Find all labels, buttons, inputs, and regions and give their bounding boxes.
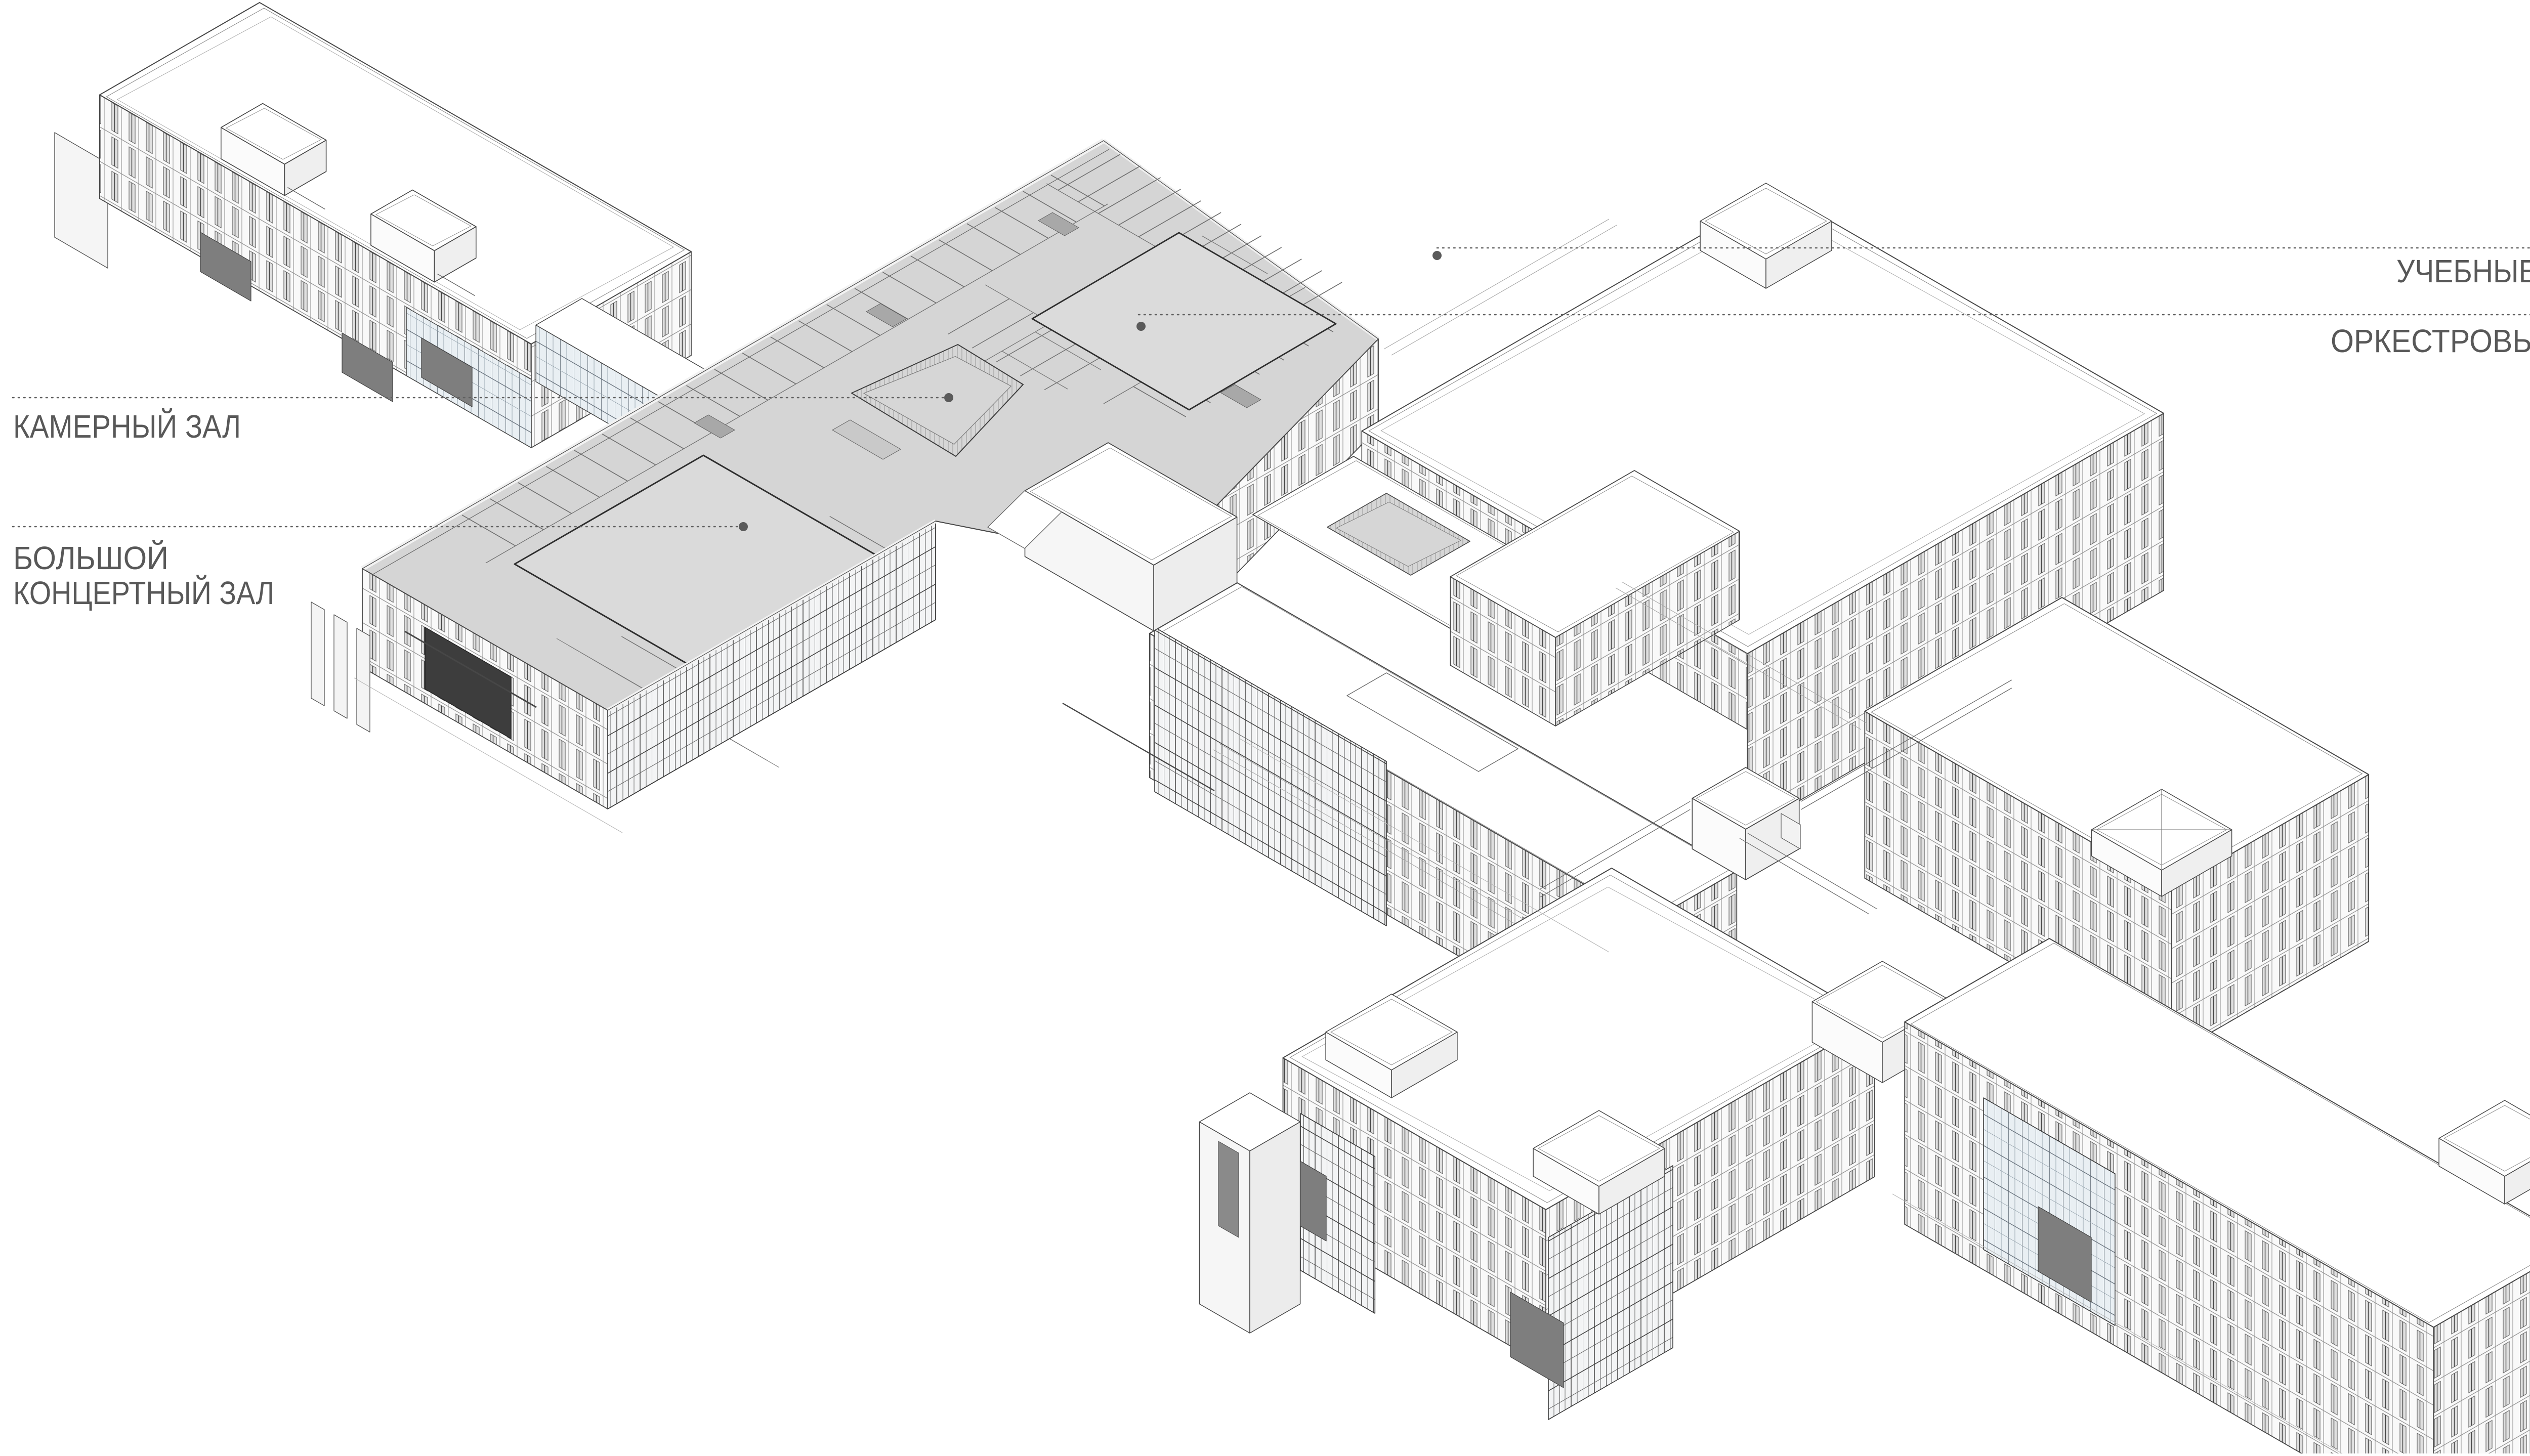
svg-text:КАМЕРНЫЙ ЗАЛ: КАМЕРНЫЙ ЗАЛ — [13, 408, 241, 445]
svg-text:БОЛЬШОЙ: БОЛЬШОЙ — [13, 539, 168, 576]
svg-text:ОРКЕСТРОВЫЙ КЛАСС: ОРКЕСТРОВЫЙ КЛАСС — [2331, 322, 2530, 359]
svg-text:КОНЦЕРТНЫЙ ЗАЛ: КОНЦЕРТНЫЙ ЗАЛ — [13, 574, 274, 611]
svg-text:УЧЕБНЫЕ КЛАССЫ: УЧЕБНЫЕ КЛАССЫ — [2396, 253, 2530, 289]
